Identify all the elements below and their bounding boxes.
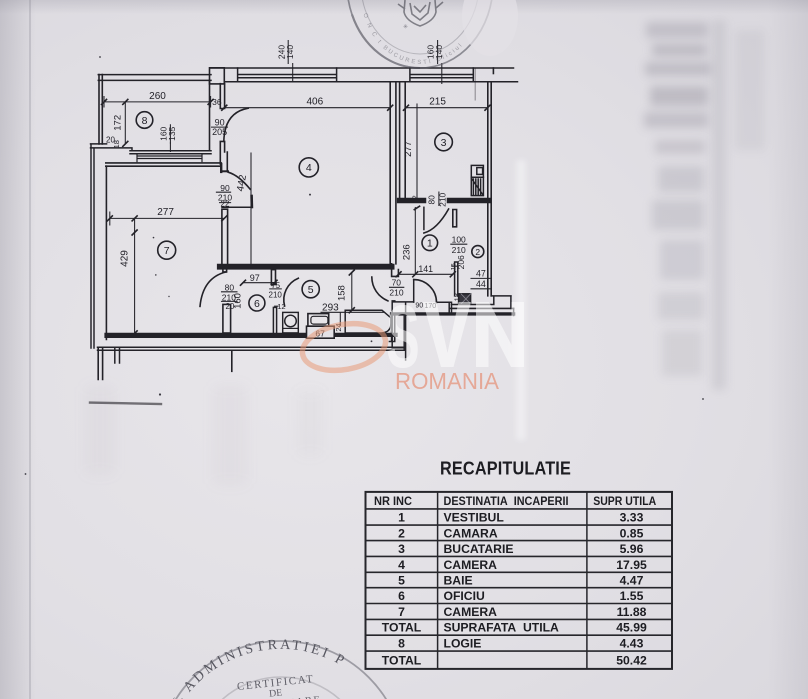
svg-text:172: 172 <box>112 115 123 131</box>
svg-text:206: 206 <box>456 255 466 269</box>
svg-text:293: 293 <box>322 302 339 313</box>
svg-text:20: 20 <box>225 302 234 311</box>
svg-text:277: 277 <box>157 207 174 218</box>
svg-text:7: 7 <box>398 605 405 619</box>
svg-text:RECAPITULATIE: RECAPITULATIE <box>440 457 571 478</box>
svg-text:0.85: 0.85 <box>620 526 644 540</box>
svg-text:5: 5 <box>398 573 405 587</box>
svg-text:50.42: 50.42 <box>616 653 647 667</box>
svg-text:90: 90 <box>215 117 225 127</box>
svg-text:O N C t BUCURESTI Oficiul: O N C t BUCURESTI Oficiul <box>362 13 465 66</box>
svg-text:210: 210 <box>438 192 448 206</box>
svg-text:44: 44 <box>476 279 486 289</box>
svg-text:4.47: 4.47 <box>620 573 644 587</box>
svg-text:CAMERA: CAMERA <box>444 605 498 619</box>
svg-text:18: 18 <box>452 293 461 301</box>
svg-text:75: 75 <box>271 281 280 290</box>
svg-text:DESTINATIA INCAPERII: DESTINATIA INCAPERII <box>444 494 569 508</box>
svg-text:1.55: 1.55 <box>620 589 644 603</box>
svg-text:2: 2 <box>475 247 480 257</box>
svg-text:277: 277 <box>403 141 414 157</box>
svg-text:BAIE: BAIE <box>444 573 473 587</box>
svg-text:11.88: 11.88 <box>617 605 647 619</box>
svg-text:70: 70 <box>392 277 402 287</box>
svg-text:22: 22 <box>221 200 230 209</box>
svg-text:5.96: 5.96 <box>620 542 644 556</box>
svg-text:8: 8 <box>142 115 148 127</box>
svg-text:3.33: 3.33 <box>620 510 644 524</box>
svg-text:406: 406 <box>306 96 323 107</box>
svg-text:18: 18 <box>112 140 121 148</box>
svg-text:NR INC: NR INC <box>374 494 412 508</box>
svg-text:✳: ✳ <box>403 24 408 31</box>
svg-text:17.95: 17.95 <box>616 558 647 572</box>
svg-text:210: 210 <box>452 245 466 255</box>
svg-text:210: 210 <box>269 291 283 300</box>
svg-text:260: 260 <box>149 91 166 102</box>
svg-text:CAMERA: CAMERA <box>444 558 498 572</box>
svg-text:1: 1 <box>398 510 405 524</box>
svg-text:7: 7 <box>164 245 170 257</box>
svg-text:12: 12 <box>277 302 285 311</box>
svg-text:158: 158 <box>336 285 347 301</box>
svg-text:4.43: 4.43 <box>620 637 644 651</box>
svg-text:16: 16 <box>451 263 458 271</box>
svg-text:SUPRAFATA UTILA: SUPRAFATA UTILA <box>444 621 560 635</box>
svg-text:45.99: 45.99 <box>616 621 647 635</box>
svg-text:LOGIE: LOGIE <box>444 637 482 651</box>
svg-text:6: 6 <box>398 589 405 603</box>
svg-text:BUCATARIE: BUCATARIE <box>444 542 514 556</box>
svg-text:141: 141 <box>418 264 433 274</box>
svg-text:1: 1 <box>427 237 433 249</box>
svg-text:CAMARA: CAMARA <box>444 526 498 540</box>
svg-text:100: 100 <box>452 235 466 245</box>
svg-text:SUPR UTILA: SUPR UTILA <box>593 494 656 508</box>
svg-text:4: 4 <box>398 558 405 572</box>
svg-text:TOTAL: TOTAL <box>382 621 422 635</box>
svg-text:97: 97 <box>250 273 260 283</box>
svg-text:2: 2 <box>398 526 405 540</box>
svg-text:140: 140 <box>285 45 295 59</box>
svg-text:135: 135 <box>167 126 177 140</box>
svg-text:429: 429 <box>119 250 130 267</box>
svg-text:215: 215 <box>429 96 446 107</box>
svg-text:TOTAL: TOTAL <box>382 653 422 667</box>
svg-text:205: 205 <box>212 127 227 137</box>
svg-text:3: 3 <box>398 542 405 556</box>
svg-text:VESTIBUL: VESTIBUL <box>444 510 505 524</box>
svg-text:12: 12 <box>412 195 419 203</box>
svg-text:36: 36 <box>212 97 222 107</box>
svg-text:OFICIU: OFICIU <box>444 589 485 603</box>
svg-text:90: 90 <box>220 183 230 193</box>
svg-text:47: 47 <box>476 269 486 279</box>
svg-text:5: 5 <box>308 284 314 296</box>
svg-text:3: 3 <box>441 137 447 149</box>
svg-text:DE: DE <box>269 687 283 699</box>
svg-text:4: 4 <box>306 162 312 174</box>
svg-text:236: 236 <box>401 244 412 260</box>
svg-text:6: 6 <box>254 298 260 310</box>
svg-text:442: 442 <box>235 174 249 193</box>
svg-text:80: 80 <box>225 282 235 292</box>
svg-text:8: 8 <box>398 637 405 651</box>
svg-text:80: 80 <box>427 195 437 205</box>
svg-text:210: 210 <box>222 292 236 302</box>
svg-text:ROMANIA: ROMANIA <box>395 368 500 394</box>
